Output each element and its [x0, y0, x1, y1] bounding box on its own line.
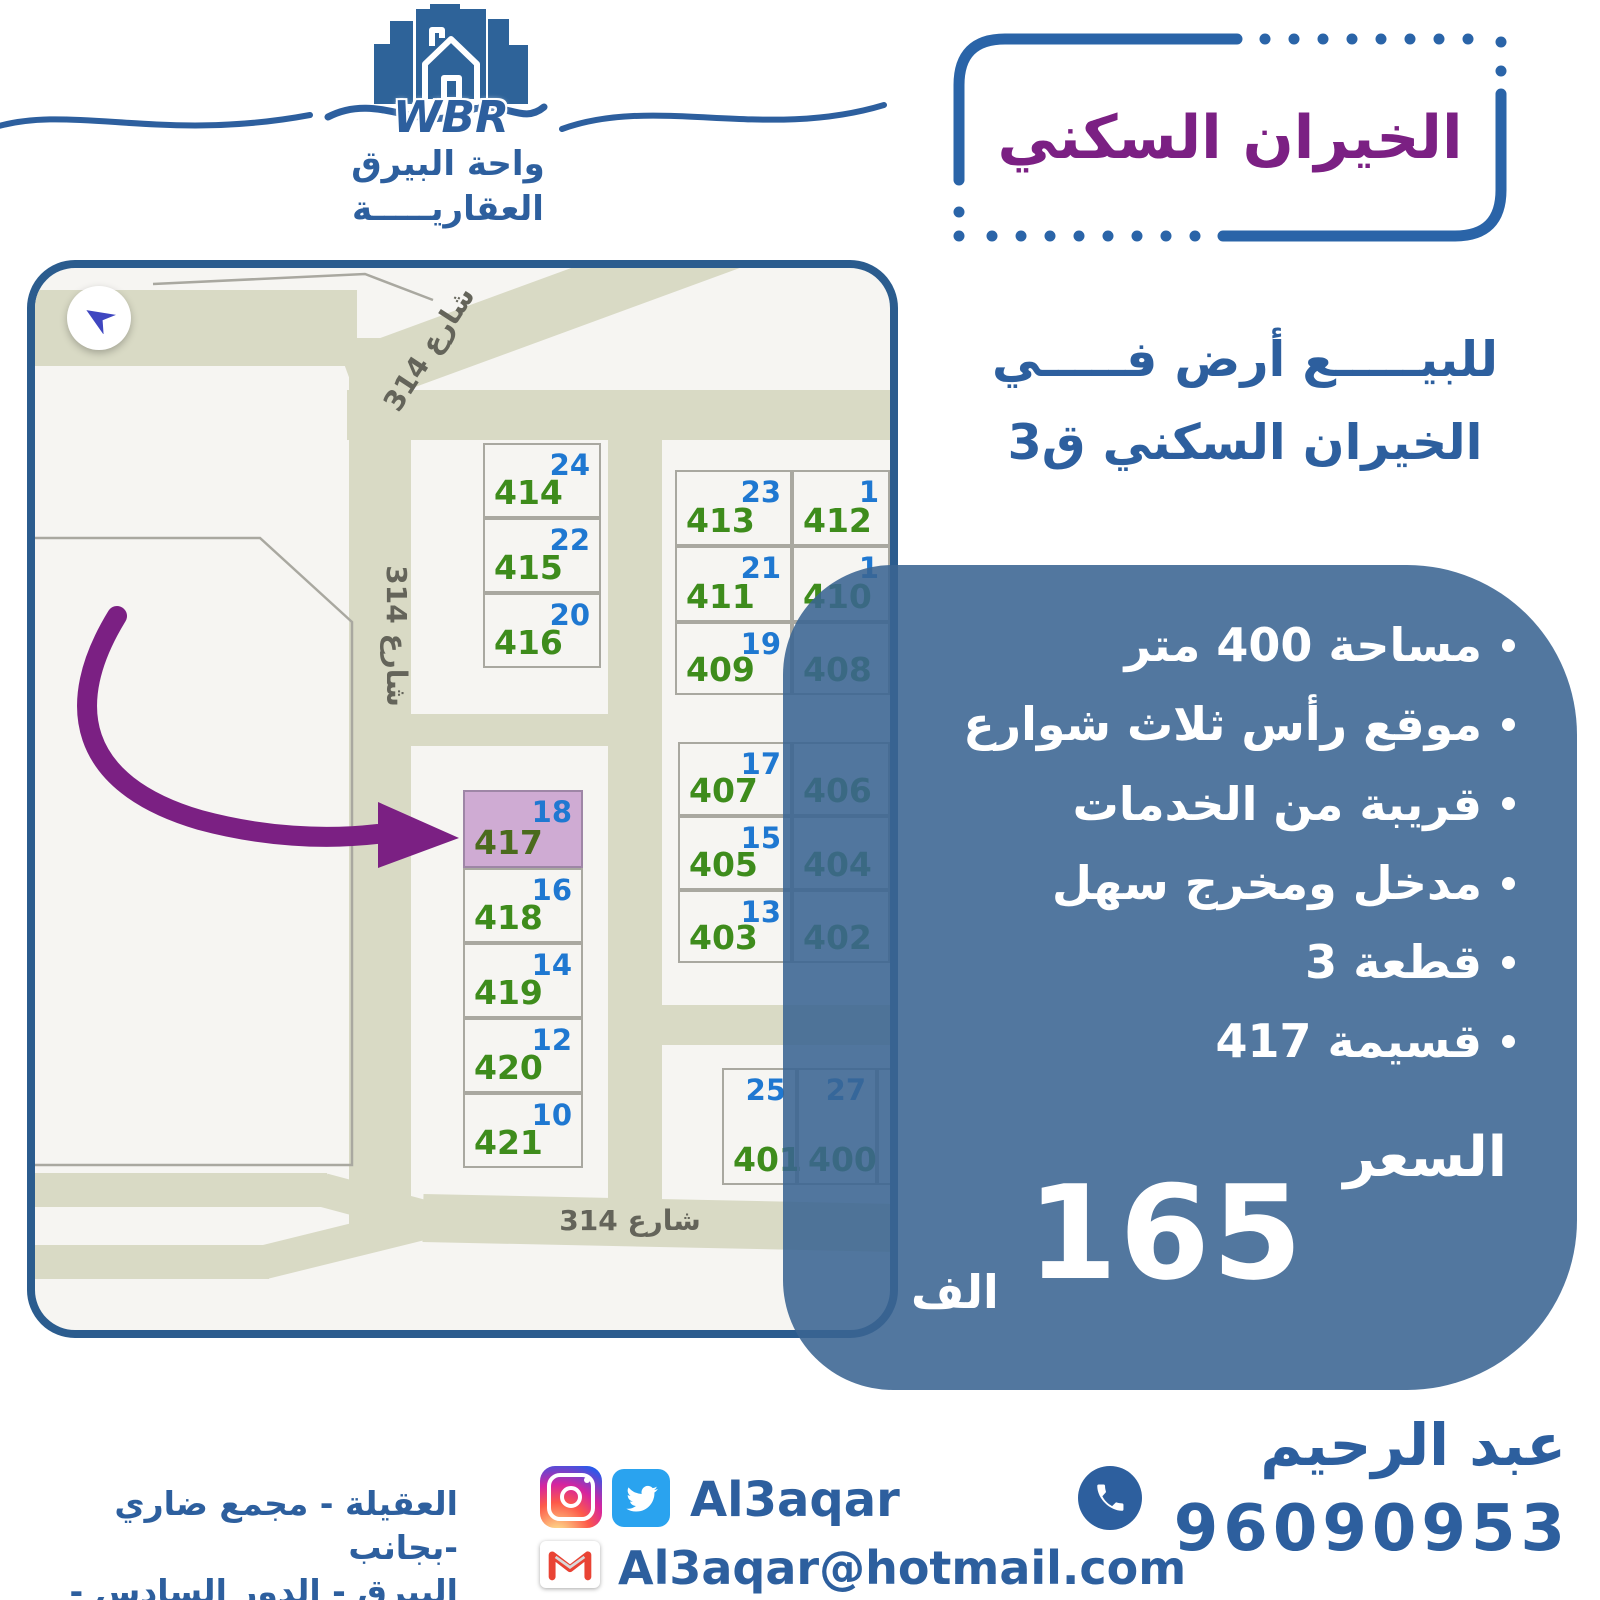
agent-name: عبد الرحيم: [1066, 1416, 1566, 1474]
instagram-lens: [560, 1486, 582, 1508]
lot-number: 10: [532, 1098, 572, 1132]
brand-name: واحة البيرق العقاريـــــة: [348, 142, 548, 232]
detail-bullet-1: موقع رأس ثلاث شوارع: [823, 700, 1515, 748]
highlight-arrow: [87, 616, 377, 837]
lot-number: 15: [741, 821, 781, 855]
office-address: العقيلة - مجمع ضاري -بجانب البيرق - الدو…: [20, 1482, 458, 1600]
bullet-text: مدخل ومخرج سهل: [1052, 859, 1482, 907]
lot-number: 21: [741, 551, 781, 585]
lot-number: 23: [741, 475, 781, 509]
map-plot-405: 40515: [678, 816, 792, 890]
brand-acronym: WBR: [362, 92, 540, 143]
map-plot-403: 40313: [678, 890, 792, 963]
street-label-vertical: شارع 314: [380, 565, 413, 707]
lot-number: 14: [532, 948, 572, 982]
instagram-icon[interactable]: [540, 1466, 602, 1528]
lot-number: 17: [741, 747, 781, 781]
lot-number: 22: [550, 523, 590, 557]
office-address-line2: البيرق - الدور السادس - مكتب 6: [20, 1570, 458, 1600]
map-plot-414: 41424: [483, 443, 601, 518]
bullet-text: قسيمة 417: [1216, 1017, 1483, 1065]
map-plot-415: 41522: [483, 518, 601, 593]
map-plot-412: 4121: [792, 470, 890, 546]
bullet-dot-icon: [1502, 718, 1515, 731]
detail-bullet-2: قريبة من الخدمات: [823, 780, 1515, 828]
bullet-dot-icon: [1502, 797, 1515, 810]
compass-icon[interactable]: [67, 286, 131, 350]
map-plot-409: 40919: [675, 622, 792, 695]
detail-bullet-4: قطعة 3: [823, 938, 1515, 986]
bullet-text: مساحة 400 متر: [1124, 621, 1482, 669]
lot-number: 18: [532, 795, 572, 829]
office-address-line1: العقيلة - مجمع ضاري -بجانب: [20, 1482, 458, 1570]
details-bullet-list: مساحة 400 مترموقع رأس ثلاث شوارعقريبة من…: [823, 621, 1515, 1066]
agent-phone-number[interactable]: 96090953: [1070, 1492, 1570, 1566]
page-title: الخيران السكني: [945, 30, 1515, 245]
map-plot-419: 41914: [463, 943, 583, 1018]
lot-number: 20: [550, 598, 590, 632]
ad-subtitle-line2: الخيران السكني ق3: [900, 401, 1590, 484]
wbr-logo-icon: [372, 4, 530, 106]
price-unit: الف: [911, 1265, 999, 1319]
bullet-text: موقع رأس ثلاث شوارع: [963, 700, 1482, 748]
map-plot-418: 41816: [463, 868, 583, 943]
bullet-dot-icon: [1502, 877, 1515, 890]
ad-subtitle-line1: للبيـــــع أرض فـــــي: [900, 318, 1590, 401]
gmail-icon[interactable]: [540, 1541, 600, 1588]
lot-number: 13: [741, 895, 781, 929]
instagram-dot: [584, 1477, 590, 1483]
twitter-icon[interactable]: [612, 1469, 670, 1527]
detail-bullet-5: قسيمة 417: [823, 1017, 1515, 1065]
social-handle[interactable]: Al3aqar: [690, 1472, 900, 1528]
bullet-text: قطعة 3: [1305, 938, 1482, 986]
detail-bullet-0: مساحة 400 متر: [823, 621, 1515, 669]
map-plot-417: 41718: [463, 790, 583, 868]
map-plot-420: 42012: [463, 1018, 583, 1093]
bullet-text: قريبة من الخدمات: [1073, 780, 1482, 828]
price-value: 165: [1027, 1157, 1304, 1309]
lot-number: 16: [532, 873, 572, 907]
lot-number: 24: [550, 448, 590, 482]
real-estate-ad: WBR واحة البيرق العقاريـــــة الخيران ال…: [0, 0, 1600, 1600]
lot-number: 19: [741, 627, 781, 661]
bullet-dot-icon: [1502, 956, 1515, 969]
map-plot-421: 42110: [463, 1093, 583, 1168]
details-panel: مساحة 400 مترموقع رأس ثلاث شوارعقريبة من…: [783, 565, 1577, 1390]
map-plot-416: 41620: [483, 593, 601, 668]
map-plot-407: 40717: [678, 742, 792, 816]
bullet-dot-icon: [1502, 1035, 1515, 1048]
brand-name-line2: العقاريـــــة: [348, 187, 548, 232]
plot-map: شارع 314 شارع 314 شارع 314 4142441522416…: [27, 260, 898, 1338]
lot-number: 1: [859, 475, 879, 509]
brand-name-line1: واحة البيرق: [348, 142, 548, 187]
street-label-bottom: شارع 314: [559, 1204, 701, 1237]
highlight-arrow-head: [378, 802, 459, 868]
detail-bullet-3: مدخل ومخرج سهل: [823, 859, 1515, 907]
lot-number: 12: [532, 1023, 572, 1057]
map-plot-411: 41121: [675, 546, 792, 622]
lot-number: 25: [746, 1073, 786, 1107]
bullet-dot-icon: [1502, 639, 1515, 652]
ad-subtitle: للبيـــــع أرض فـــــي الخيران السكني ق3: [900, 318, 1590, 485]
map-plot-413: 41323: [675, 470, 792, 546]
price-label: السعر: [1343, 1125, 1507, 1190]
